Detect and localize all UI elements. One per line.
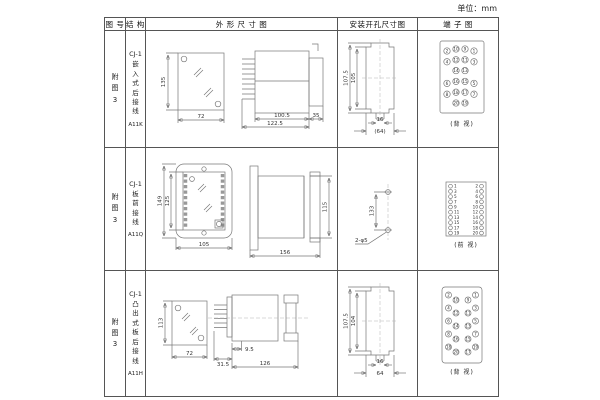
header-terminal-diagram: 端 子 图 [418,18,498,31]
svg-text:8: 8 [446,92,449,97]
svg-text:19: 19 [462,101,468,106]
dim-hole-pitch: 133 [370,205,376,216]
unit-label: 单位：mm [400,3,497,14]
svg-text:12: 12 [453,311,459,316]
svg-text:14: 14 [453,68,459,73]
svg-text:9: 9 [464,47,467,52]
dim-cutout-outer-h: 107.5 [344,70,350,86]
dim-front-width: 72 [198,114,205,120]
dim-front-width: 105 [199,242,210,248]
svg-text:2: 2 [446,49,449,54]
dim-side-depth: 126 [260,361,271,367]
dim-cutout-outer-h: 107.5 [344,313,350,329]
row1-structure: CJ-1 嵌 入 式 后 接 线 A11K [126,31,146,148]
terminal-circles-back-view: 2 10 9 1 4 12 11 3 14 13 6 16 15 5 8 18 … [444,46,477,106]
svg-text:16: 16 [453,337,459,342]
svg-text:19: 19 [473,345,479,350]
row3-install-cell: 107.5 104 16 64 [338,271,418,396]
dim-side-pin: 31.5 [217,362,230,368]
svg-text:20: 20 [453,350,459,355]
svg-text:13: 13 [462,68,468,73]
svg-text:7: 7 [474,332,477,337]
row3-structure: CJ-1 凸 出 式 板 后 接 线 A11H [126,271,146,396]
dim-cutout-inner-h: 104 [351,315,357,326]
svg-text:4: 4 [447,306,450,311]
svg-text:12: 12 [453,57,459,62]
svg-text:20: 20 [453,101,459,106]
svg-text:3: 3 [473,59,476,64]
row1-install-cell: 107.5 105 16 (64) [338,31,418,148]
svg-text:14: 14 [453,324,459,329]
dim-front-inner-h: 125 [165,195,171,206]
row3-terminal-drawing: 2 10 9 1 4 12 11 3 6 14 13 5 8 16 15 7 1… [418,271,497,395]
row3-figure-no: 附 图 3 [105,271,126,396]
row3-outline-cell: 113 72 9.5 31.5 126 [146,271,338,396]
row2-install-drawing: 133 2-φ5 [338,148,417,270]
svg-text:4: 4 [446,59,449,64]
row2-structure-name: 板 前 接 线 [132,190,139,228]
row1-install-drawing: 107.5 105 16 (64) [338,31,417,147]
svg-text:2: 2 [447,293,450,298]
row3-install-drawing: 107.5 104 16 64 [338,271,417,395]
row2-outline-drawing: 149 125 105 156 115 [146,148,337,270]
row2-terminal-cell: 1 2 3 4 5 6 7 8 9 10 11 12 13 14 15 16 1… [418,148,498,271]
dim-slot-width: 16 [377,117,384,123]
svg-text:9: 9 [467,298,470,303]
svg-text:13: 13 [465,324,471,329]
svg-text:17: 17 [462,90,468,95]
dim-hole-width: 64 [377,371,384,377]
row2-model: A11Q [128,232,143,238]
dim-side-offset: 9.5 [245,347,254,353]
row3-outline-drawing: 113 72 9.5 31.5 126 [146,271,337,395]
svg-text:11: 11 [462,57,468,62]
row2-terminal-drawing: 1 2 3 4 5 6 7 8 9 10 11 12 13 14 15 16 1… [418,148,497,270]
svg-text:20: 20 [473,231,479,236]
svg-text:16: 16 [453,79,459,84]
dim-cutout-inner-h: 105 [351,72,357,83]
header-outline-dims: 外 形 尺 寸 图 [146,18,338,31]
svg-text:17: 17 [465,350,471,355]
terminal-view-label: (背 视) [450,120,474,128]
svg-text:19: 19 [454,231,460,236]
svg-text:3: 3 [474,306,477,311]
svg-text:6: 6 [446,81,449,86]
svg-text:1: 1 [473,49,476,54]
row3-structure-name: 凸 出 式 板 后 接 线 [132,300,139,366]
svg-text:15: 15 [462,79,468,84]
row1-outline-cell: 135 72 100.5 35 122.5 [146,31,338,148]
svg-text:18: 18 [453,90,459,95]
dim-side-rear: 35 [313,113,320,119]
header-figure-no: 图 号 [105,18,126,31]
terminal-view-label: (背 视) [450,368,474,376]
row3-terminal-cell: 2 10 9 1 4 12 11 3 6 14 13 5 8 16 15 7 1… [418,271,498,396]
dim-slot-width: 16 [377,359,384,365]
svg-text:7: 7 [473,92,476,97]
dim-front-height: 113 [159,317,165,328]
row1-series: CJ-1 [129,50,142,58]
svg-text:15: 15 [465,337,471,342]
dim-hole-width: (64) [374,129,385,135]
dim-front-outer-h: 149 [158,195,164,206]
header-install-dims: 安装开孔尺寸图 [338,18,418,31]
dim-front-height: 135 [161,76,167,87]
hole-spec-label: 2-φ5 [355,238,368,244]
svg-text:10: 10 [453,298,459,303]
row2-series: CJ-1 [129,180,142,188]
terminal-circles-front-view: 1 2 3 4 5 6 7 8 9 10 11 12 13 14 15 16 1… [449,184,484,236]
row1-terminal-cell: 2 10 9 1 4 12 11 3 14 13 6 16 15 5 8 18 … [418,31,498,148]
svg-text:10: 10 [453,47,459,52]
row2-structure: CJ-1 板 前 接 线 A11Q [126,148,146,271]
row1-figure-no: 附 图 3 [105,31,126,148]
dim-side-depth: 156 [280,250,291,256]
row2-install-cell: 133 2-φ5 [338,148,418,271]
row3-series: CJ-1 [129,290,142,298]
svg-text:11: 11 [465,311,471,316]
row1-model: A11K [128,122,142,128]
dim-side-total: 122.5 [267,121,283,127]
svg-text:18: 18 [446,345,452,350]
dim-side-height: 115 [323,201,329,212]
svg-text:6: 6 [447,319,450,324]
dim-front-width: 72 [186,351,193,357]
row1-terminal-drawing: 2 10 9 1 4 12 11 3 14 13 6 16 15 5 8 18 … [418,31,497,147]
row1-structure-name: 嵌 入 式 后 接 线 [132,60,139,117]
terminal-circles-back-view: 2 10 9 1 4 12 11 3 6 14 13 5 8 16 15 7 1… [446,292,479,355]
spec-table: 图 号 结 构 外 形 尺 寸 图 安装开孔尺寸图 端 子 图 附 图 3 CJ… [104,17,499,397]
dim-side-body: 100.5 [274,113,290,119]
terminal-view-label: (前 视) [454,241,478,249]
svg-text:8: 8 [447,332,450,337]
header-structure: 结 构 [126,18,146,31]
row1-outline-drawing: 135 72 100.5 35 122.5 [146,31,337,147]
svg-text:5: 5 [474,319,477,324]
row2-outline-cell: 149 125 105 156 115 [146,148,338,271]
row3-model: A11H [128,371,143,377]
svg-text:1: 1 [474,293,477,298]
row2-figure-no: 附 图 3 [105,148,126,271]
svg-text:5: 5 [473,81,476,86]
